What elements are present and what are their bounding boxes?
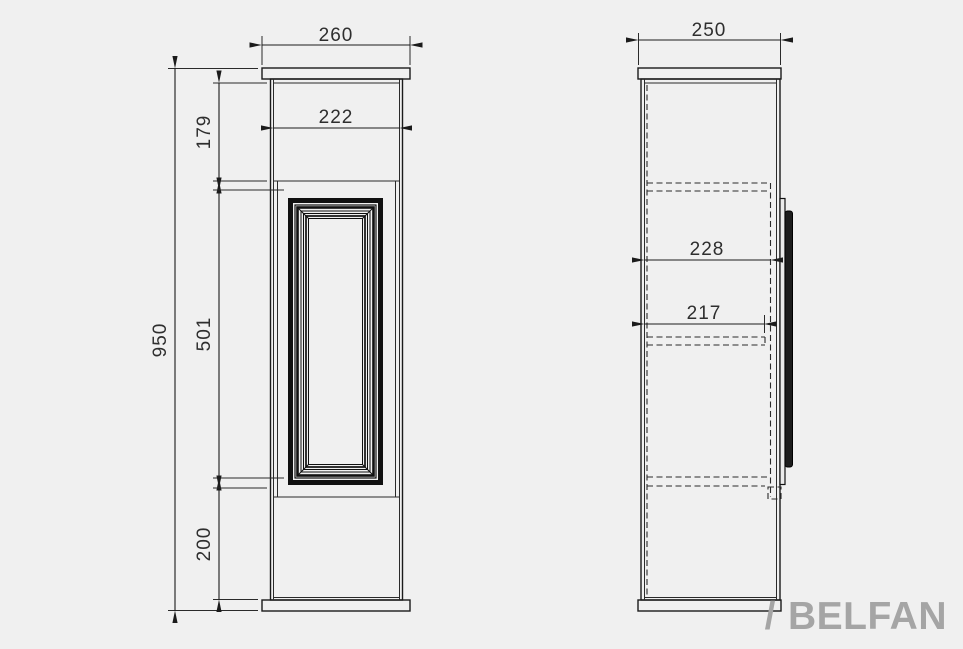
side-body-outline [641,79,780,600]
brand-logo: / BELFAN [765,597,947,636]
dim-base-height-label: 200 [194,527,215,562]
dim-shelf-depth-label: 217 [687,303,722,324]
raised-panel [291,201,381,483]
brand-name: BELFAN [788,597,947,636]
dim-opening-width-label: 222 [319,107,354,128]
dim-overall-width: 260 [262,25,410,65]
dim-interior-depth: 228 [645,239,771,260]
dim-overall-width-label: 260 [319,25,354,46]
panel-profile [780,199,793,485]
dim-shelf-depth: 217 [645,303,765,333]
dim-overall-depth: 250 [639,20,781,65]
dim-panel-height-label: 501 [194,317,215,352]
side-view: 250 228 217 [638,20,793,611]
front-view: 260 222 950 179 501 [150,25,410,611]
front-top-cap [262,68,410,79]
dim-base-height: 200 [194,488,267,600]
front-bottom-cap [262,600,410,611]
dim-interior-depth-label: 228 [690,239,725,260]
dim-overall-depth-label: 250 [692,20,727,41]
panel-miter-corners [299,209,373,475]
dim-overall-height-label: 950 [150,323,171,358]
brand-slash-icon: / [765,597,776,636]
drawing-canvas: 260 222 950 179 501 [0,0,963,649]
technical-drawing: 260 222 950 179 501 [0,0,963,649]
dim-top-section-height: 179 [194,83,267,181]
hidden-lines [647,85,781,596]
side-body-inner-lines [645,79,777,600]
side-bottom-cap [638,600,781,611]
side-top-cap [638,68,781,79]
dim-top-section-height-label: 179 [194,115,215,150]
dim-opening-width: 222 [274,107,400,128]
